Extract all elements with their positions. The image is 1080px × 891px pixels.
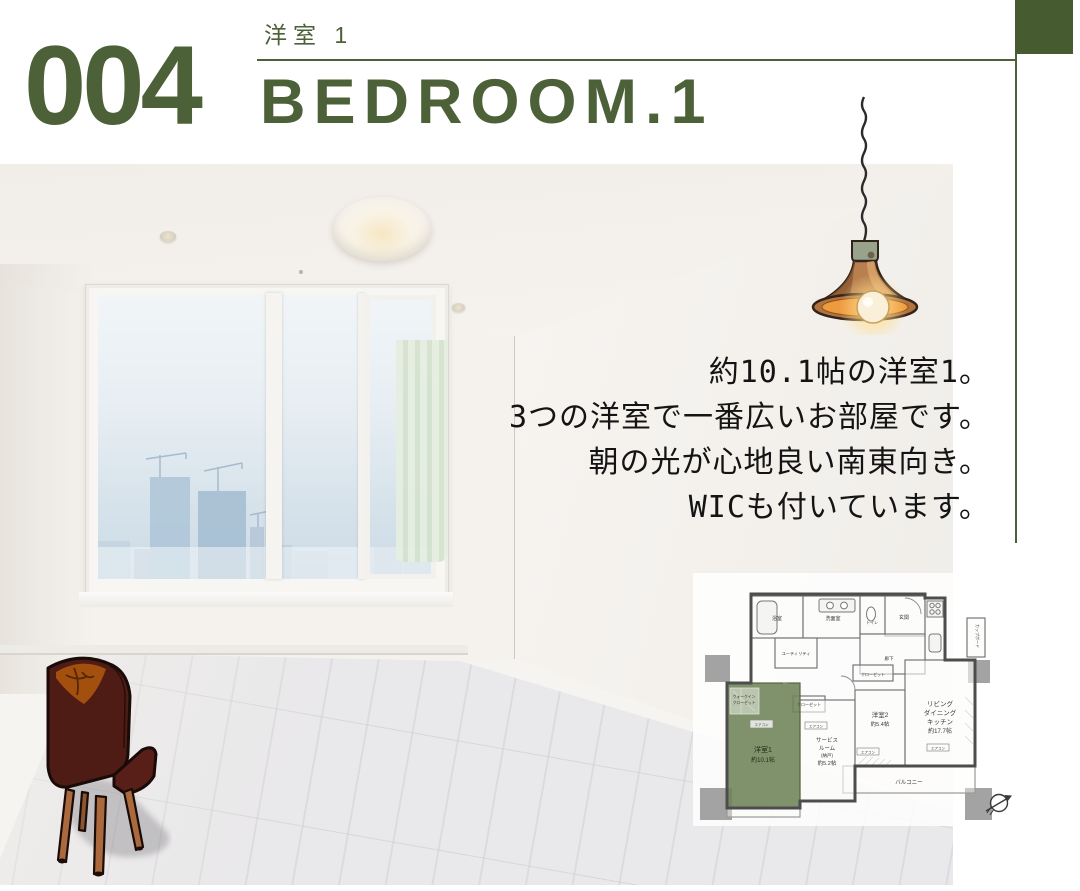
label-bedroom2: 洋室2 xyxy=(872,710,889,719)
label-closet: クローゼット xyxy=(861,671,885,677)
page-index-number: 004 xyxy=(24,30,199,142)
room-description: 約10.1帖の洋室1。 3つの洋室で一番広いお部屋です。 朝の光が心地良い南東向… xyxy=(509,350,990,530)
pendant-lamp-illustration xyxy=(795,95,935,335)
room-title-english: BEDROOM.1 xyxy=(260,66,714,138)
sprinkler-dot xyxy=(299,270,303,274)
window-mullion-right xyxy=(358,293,365,579)
description-line: 3つの洋室で一番広いお部屋です。 xyxy=(509,395,990,440)
label-washroom: 洗面室 xyxy=(825,615,840,622)
label-ldk-size: 約17.7帖 xyxy=(928,727,952,735)
label-ldk-1: リビング xyxy=(927,699,954,708)
label-hallway: 廊下 xyxy=(885,655,894,662)
sheer-curtain xyxy=(396,340,448,562)
description-line: WICも付いています。 xyxy=(509,485,990,530)
ceiling-light xyxy=(333,197,431,261)
listing-section: 004 洋室 1 BEDROOM.1 xyxy=(0,0,1080,891)
label-ldk-3: キッチン xyxy=(927,718,953,726)
label-entrance: 玄関 xyxy=(899,614,909,621)
label-toilet: トイレ xyxy=(866,620,878,625)
label-service-1: サービス xyxy=(816,736,838,744)
chair-body xyxy=(48,658,156,876)
corner-accent-square xyxy=(1015,0,1073,54)
vintage-chair-illustration xyxy=(22,648,172,883)
label-wic-1: ウォークイン xyxy=(733,694,756,699)
floor-plan: 浴室 洗面室 トイレ 玄関 廊下 ユーティリティ カップボード ウォークイン ク… xyxy=(693,572,1023,830)
title-divider-line xyxy=(257,59,1017,61)
downlight-icon xyxy=(160,231,176,242)
label-service-2: ルーム xyxy=(819,745,836,752)
label-ac: エアコン xyxy=(755,722,769,727)
label-balcony: バルコニー xyxy=(895,779,922,786)
label-service-4: 約5.2帖 xyxy=(818,759,837,767)
label-closet: クローゼット xyxy=(797,701,821,707)
window-sill xyxy=(79,592,453,607)
lamp-shade xyxy=(813,241,917,335)
label-bedroom2-size: 約5.4帖 xyxy=(871,720,890,728)
label-cupboard: カップボード xyxy=(975,624,981,648)
description-line: 朝の光が心地良い南東向き。 xyxy=(509,440,990,485)
label-service-3: (納戸) xyxy=(821,752,833,759)
label-bedroom1: 洋室1 xyxy=(754,745,772,754)
window-mullion-center xyxy=(266,293,282,579)
room-title-japanese: 洋室 1 xyxy=(264,16,353,50)
label-ac: エアコン xyxy=(931,746,945,751)
label-ac: エアコン xyxy=(809,724,823,729)
photo-left-wall xyxy=(0,264,95,694)
description-line: 約10.1帖の洋室1。 xyxy=(509,350,990,395)
label-ldk-2: ダイニング xyxy=(924,708,957,717)
label-bath: 浴室 xyxy=(772,615,782,622)
vertical-accent-line xyxy=(1015,54,1017,543)
label-wic-2: クローゼット xyxy=(733,700,756,705)
lamp-chain xyxy=(862,97,866,241)
lamp-bulb xyxy=(857,291,889,323)
label-bedroom1-size: 約10.1帖 xyxy=(751,756,775,764)
label-ac: エアコン xyxy=(861,750,875,755)
photo-window xyxy=(85,284,449,596)
downlight-icon xyxy=(452,303,465,312)
